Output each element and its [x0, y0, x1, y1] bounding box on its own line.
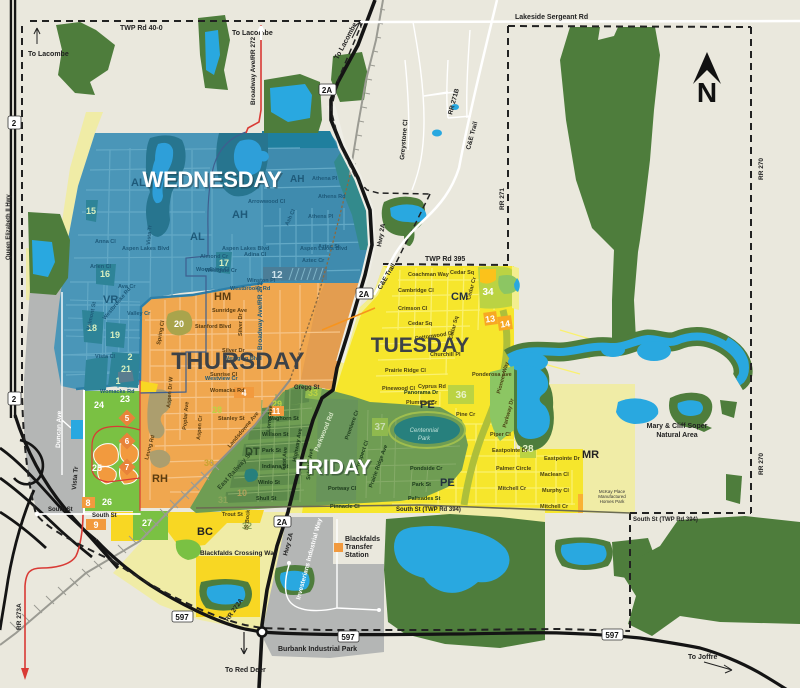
svg-text:1: 1 — [115, 376, 120, 386]
svg-text:Almond Cr: Almond Cr — [200, 254, 229, 260]
svg-text:597: 597 — [605, 631, 619, 640]
svg-text:Palisades St: Palisades St — [408, 496, 441, 502]
svg-text:Cedar Sq: Cedar Sq — [450, 270, 474, 276]
svg-text:Athena Pl: Athena Pl — [312, 176, 338, 182]
svg-text:South St: South St — [48, 507, 73, 513]
svg-text:Westbrooke Rd: Westbrooke Rd — [230, 286, 270, 292]
svg-text:Park: Park — [418, 436, 431, 442]
svg-text:Cedar Sq: Cedar Sq — [408, 321, 432, 327]
svg-text:9: 9 — [93, 520, 98, 530]
svg-text:AH: AH — [232, 209, 248, 221]
svg-text:AH: AH — [290, 174, 304, 185]
svg-text:27: 27 — [142, 518, 152, 528]
svg-text:Portway Cl: Portway Cl — [328, 486, 357, 492]
svg-text:Panorama Dr: Panorama Dr — [404, 390, 439, 396]
svg-text:RR 273A: RR 273A — [16, 603, 23, 630]
svg-text:2A: 2A — [359, 290, 369, 299]
svg-text:South St: South St — [92, 513, 117, 519]
svg-text:TWP Rd 40-0: TWP Rd 40-0 — [120, 25, 163, 32]
svg-text:Park St: Park St — [412, 482, 431, 488]
svg-text:36: 36 — [455, 390, 467, 401]
svg-text:TUESDAY: TUESDAY — [371, 334, 469, 357]
svg-text:THURSDAY: THURSDAY — [171, 348, 305, 375]
svg-text:Pine Cr: Pine Cr — [456, 412, 476, 418]
svg-text:AL: AL — [190, 231, 205, 243]
svg-text:Willson St: Willson St — [262, 432, 289, 438]
svg-text:BC: BC — [197, 526, 213, 538]
svg-text:Queen Elizabeth II Hwy: Queen Elizabeth II Hwy — [6, 194, 12, 260]
svg-text:Natural Area: Natural Area — [656, 432, 697, 439]
svg-text:Trout St: Trout St — [222, 512, 243, 518]
svg-text:Eastpointe Dr: Eastpointe Dr — [544, 456, 581, 462]
svg-text:14: 14 — [499, 318, 510, 329]
svg-text:Shull St: Shull St — [256, 496, 277, 502]
svg-text:Valley Cr: Valley Cr — [127, 311, 151, 317]
svg-text:2A: 2A — [322, 86, 332, 95]
svg-text:To Joffre: To Joffre — [688, 654, 718, 661]
svg-text:28: 28 — [212, 405, 222, 415]
svg-text:Winlo St: Winlo St — [258, 480, 280, 486]
svg-text:RH: RH — [152, 473, 168, 485]
svg-text:Aspen Lakes Blvd: Aspen Lakes Blvd — [122, 246, 169, 252]
svg-text:Arrowwood Cl: Arrowwood Cl — [248, 199, 286, 205]
svg-text:25: 25 — [92, 463, 102, 473]
svg-text:7: 7 — [125, 463, 130, 472]
svg-text:Winston Pl: Winston Pl — [247, 278, 276, 284]
svg-text:16: 16 — [100, 269, 110, 279]
svg-text:Pondside Cr: Pondside Cr — [410, 466, 443, 472]
svg-text:5: 5 — [125, 414, 130, 423]
svg-text:Aztec St: Aztec St — [318, 244, 340, 250]
svg-text:Transfer: Transfer — [345, 544, 373, 551]
svg-text:RR 270: RR 270 — [758, 453, 765, 475]
svg-text:FRIDAY: FRIDAY — [295, 456, 371, 479]
svg-text:Eastpointe Dr: Eastpointe Dr — [492, 448, 529, 454]
svg-text:Mitchell Cr: Mitchell Cr — [498, 486, 527, 492]
svg-text:HM: HM — [214, 291, 231, 303]
svg-text:Murphy Cl: Murphy Cl — [542, 488, 569, 494]
svg-text:597: 597 — [341, 633, 355, 642]
svg-text:21: 21 — [121, 364, 131, 374]
svg-text:Mitchell Cr: Mitchell Cr — [540, 504, 569, 510]
svg-text:Duncan Ave: Duncan Ave — [55, 410, 63, 448]
svg-text:MR: MR — [582, 449, 599, 461]
svg-text:To Red Deer: To Red Deer — [225, 667, 266, 674]
svg-text:19: 19 — [110, 330, 120, 340]
svg-text:Cambridge Cl: Cambridge Cl — [398, 288, 434, 294]
svg-text:Womacks Rd: Womacks Rd — [210, 388, 244, 394]
svg-text:Plumtree Cr: Plumtree Cr — [406, 400, 438, 406]
svg-text:20: 20 — [174, 319, 184, 329]
svg-text:Homes Park: Homes Park — [600, 499, 626, 504]
svg-text:15: 15 — [86, 206, 96, 216]
svg-text:Lakeside Sergeant Rd: Lakeside Sergeant Rd — [515, 14, 588, 21]
svg-text:Woodbine Cl: Woodbine Cl — [196, 267, 230, 273]
svg-text:Aztec Cr: Aztec Cr — [302, 258, 325, 264]
svg-text:Womacks Rd: Womacks Rd — [100, 389, 134, 395]
svg-text:Mary & Cliff Soper: Mary & Cliff Soper — [647, 423, 708, 430]
svg-text:37: 37 — [374, 422, 386, 433]
svg-text:Sunridge Ave: Sunridge Ave — [212, 308, 247, 314]
svg-text:24: 24 — [94, 400, 104, 410]
svg-text:2: 2 — [12, 119, 17, 128]
svg-text:TWP Rd 395: TWP Rd 395 — [425, 256, 465, 263]
svg-text:South St (TWP Rd 394): South St (TWP Rd 394) — [396, 507, 461, 513]
svg-text:2A: 2A — [277, 518, 287, 527]
svg-text:10: 10 — [237, 488, 247, 498]
svg-text:Park St: Park St — [262, 448, 281, 454]
svg-text:Maclean Cl: Maclean Cl — [540, 472, 569, 478]
svg-text:N: N — [697, 77, 717, 108]
svg-text:Vista Cl: Vista Cl — [95, 354, 116, 360]
svg-text:Station: Station — [345, 552, 369, 559]
svg-text:597: 597 — [175, 613, 189, 622]
svg-text:WEDNESDAY: WEDNESDAY — [142, 167, 282, 192]
svg-text:8: 8 — [85, 498, 90, 508]
svg-text:Burbank Industrial Park: Burbank Industrial Park — [278, 646, 357, 653]
svg-text:26: 26 — [102, 497, 112, 507]
svg-text:PE: PE — [440, 477, 455, 489]
svg-text:34: 34 — [482, 287, 494, 298]
svg-text:Anna Cl: Anna Cl — [95, 239, 116, 245]
svg-text:Stanford Blvd: Stanford Blvd — [195, 324, 231, 330]
svg-text:CM: CM — [451, 291, 468, 303]
svg-text:Piper Cl: Piper Cl — [490, 432, 511, 438]
svg-text:Pinnacle Cl: Pinnacle Cl — [330, 504, 360, 510]
svg-text:South St (TWP Rd 394): South St (TWP Rd 394) — [633, 517, 698, 523]
svg-text:30: 30 — [204, 458, 214, 468]
svg-text:Gregg St: Gregg St — [294, 385, 319, 391]
svg-text:Blackfalds: Blackfalds — [345, 536, 380, 543]
svg-text:Adina Cl: Adina Cl — [244, 252, 267, 258]
svg-text:To Lacombe: To Lacombe — [28, 51, 69, 58]
svg-text:6: 6 — [125, 437, 130, 446]
svg-text:31: 31 — [218, 495, 228, 505]
svg-text:Prairie Ridge Cl: Prairie Ridge Cl — [385, 368, 426, 374]
svg-text:2: 2 — [12, 395, 17, 404]
svg-text:RR 270: RR 270 — [758, 158, 765, 180]
svg-text:Palmer Circle: Palmer Circle — [496, 466, 531, 472]
svg-text:To Lacombe: To Lacombe — [232, 30, 273, 37]
svg-text:Coachman Way: Coachman Way — [408, 272, 450, 278]
svg-text:RR 271: RR 271 — [499, 188, 506, 210]
svg-text:Athens Rd: Athens Rd — [318, 194, 346, 200]
svg-text:13: 13 — [484, 313, 495, 324]
svg-text:23: 23 — [120, 394, 130, 404]
svg-text:Silver Dr: Silver Dr — [238, 313, 244, 336]
svg-text:Centennial: Centennial — [410, 428, 439, 434]
svg-text:2: 2 — [127, 352, 132, 362]
svg-text:Crimson Cl: Crimson Cl — [398, 306, 428, 312]
svg-text:Athens Pl: Athens Pl — [308, 214, 334, 220]
svg-text:Stanley St: Stanley St — [218, 416, 245, 422]
svg-text:Arlen Cl: Arlen Cl — [90, 264, 112, 270]
svg-text:Broadway Ave/RR 272: Broadway Ave/RR 272 — [250, 36, 257, 105]
svg-text:Blackfalds Crossing Way: Blackfalds Crossing Way — [200, 550, 278, 557]
